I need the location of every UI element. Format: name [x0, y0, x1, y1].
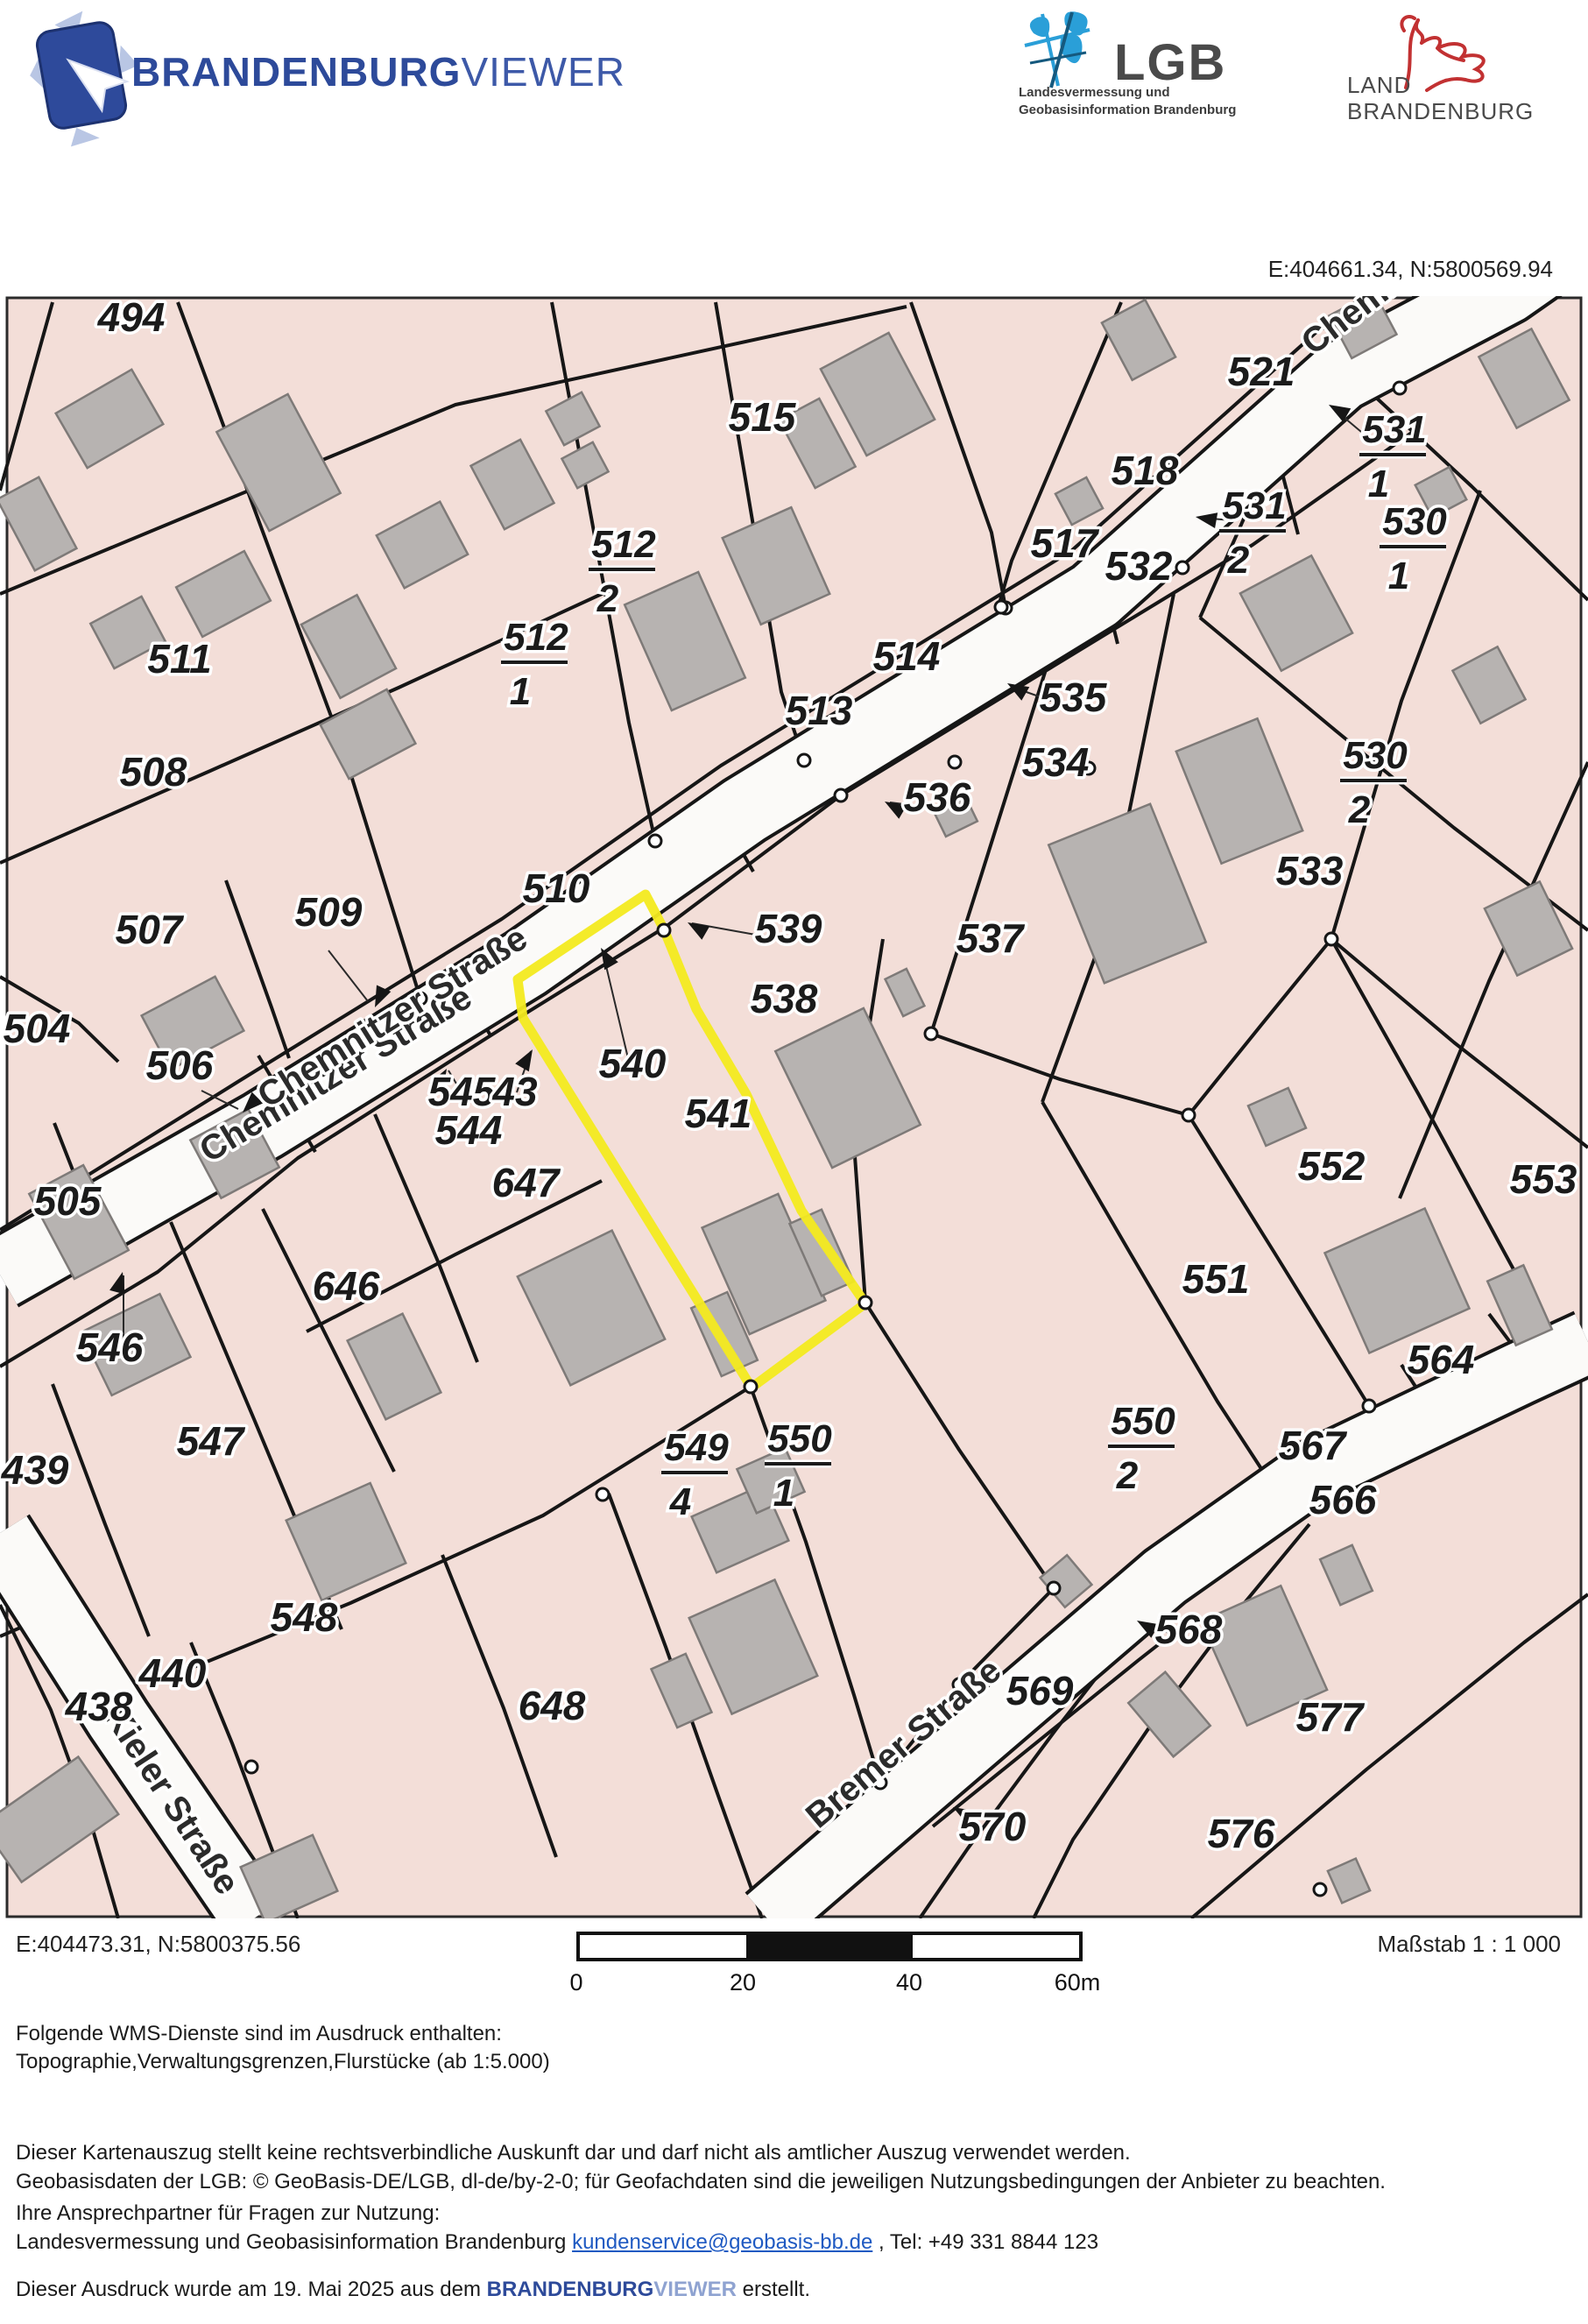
parcel-label-530-2-denominator: 2: [1348, 788, 1371, 831]
parcel-label-512-1-numerator: 512: [504, 616, 568, 659]
parcel-label-515: 515: [729, 394, 797, 440]
contact-email-link[interactable]: kundenservice@geobasis-bb.de: [572, 2230, 872, 2254]
parcel-label-512-2-numerator: 512: [591, 523, 656, 566]
parcel-label-544: 544: [435, 1107, 503, 1153]
map-view: Chemnitzer StraßeChemnitzer StraßeChemni…: [0, 296, 1588, 1918]
coordinate-readout-bottom: E:404473.31, N:5800375.56: [16, 1931, 300, 1958]
parcel-label-546: 546: [76, 1324, 144, 1370]
land-brandenburg-label: LAND BRANDENBURG: [1347, 72, 1534, 124]
print-brand-light: VIEWER: [653, 2278, 737, 2301]
boundary-point: [1314, 1883, 1326, 1896]
parcel-label-552: 552: [1298, 1143, 1366, 1189]
parcel-label-541: 541: [685, 1091, 752, 1136]
app-title-light: VIEWER: [461, 49, 625, 95]
parcel-label-551: 551: [1182, 1256, 1250, 1302]
boundary-point: [859, 1296, 872, 1309]
lgb-logo-subtitle: Landesvermessung und Geobasisinformation…: [1019, 84, 1236, 119]
parcel-label-568: 568: [1155, 1607, 1223, 1652]
parcel-label-538: 538: [751, 976, 818, 1021]
parcel-label-646: 646: [313, 1263, 380, 1309]
land-line2: BRANDENBURG: [1347, 98, 1534, 124]
wms-note-line2: Topographie,Verwaltungsgrenzen,Flurstück…: [16, 2050, 550, 2074]
scale-tick-label: 20: [730, 1969, 756, 1996]
boundary-point: [1182, 1109, 1195, 1121]
contact-post: , Tel: +49 331 8844 123: [872, 2230, 1098, 2254]
boundary-point: [1394, 382, 1406, 394]
parcel-label-438: 438: [65, 1684, 133, 1729]
parcel-label-647: 647: [492, 1160, 561, 1205]
scale-bar-ticks: 0204060m: [576, 1969, 1102, 1996]
parcel-label-535: 535: [1040, 675, 1108, 720]
parcel-label-548: 548: [271, 1594, 338, 1640]
parcel-label-550-1-numerator: 550: [767, 1417, 832, 1460]
parcel-label-510: 510: [523, 865, 590, 911]
boundary-point: [596, 1488, 609, 1501]
scale-bar-segment: [746, 1935, 913, 1958]
boundary-point: [949, 756, 961, 768]
lgb-logo-icon: [1016, 7, 1112, 90]
parcel-label-494: 494: [97, 296, 166, 340]
parcel-label-549-4-numerator: 549: [664, 1426, 729, 1469]
parcel-label-505: 505: [34, 1178, 102, 1224]
parcel-label-531-1-denominator: 1: [1368, 463, 1389, 505]
scale-tick-label: 60m: [1055, 1969, 1101, 1996]
parcel-label-570: 570: [959, 1804, 1027, 1849]
parcel-label-577: 577: [1296, 1694, 1366, 1740]
scale-bar: [576, 1932, 1083, 1961]
parcel-label-547: 547: [177, 1418, 246, 1464]
parcel-label-566: 566: [1309, 1477, 1377, 1522]
parcel-label-564: 564: [1408, 1337, 1475, 1382]
parcel-label-508: 508: [120, 749, 187, 795]
parcel-label-514: 514: [873, 633, 941, 679]
coordinate-readout-top: E:404661.34, N:5800569.94: [1268, 256, 1553, 283]
boundary-point: [1363, 1400, 1375, 1412]
boundary-point: [925, 1028, 937, 1040]
boundary-point: [798, 754, 810, 766]
parcel-label-533: 533: [1276, 848, 1344, 894]
land-line1: LAND: [1347, 72, 1534, 98]
wms-note-line1: Folgende WMS-Dienste sind im Ausdruck en…: [16, 2022, 502, 2046]
scale-text: Maßstab 1 : 1 000: [1377, 1931, 1561, 1958]
parcel-label-540: 540: [599, 1041, 667, 1086]
disclaimer-line1: Dieser Kartenauszug stellt keine rechtsv…: [16, 2141, 1131, 2165]
parcel-label-648: 648: [519, 1683, 586, 1728]
parcel-label-504: 504: [4, 1006, 71, 1051]
parcel-label-511: 511: [147, 636, 211, 682]
contact-heading: Ihre Ansprechpartner für Fragen zur Nutz…: [16, 2201, 440, 2226]
parcel-label-509: 509: [295, 889, 363, 935]
disclaimer-line2: Geobasisdaten der LGB: © GeoBasis-DE/LGB…: [16, 2170, 1386, 2194]
parcel-label-521: 521: [1228, 349, 1295, 394]
parcel-label-534: 534: [1022, 739, 1090, 785]
parcel-label-550-1-denominator: 1: [773, 1472, 794, 1515]
contact-pre: Landesvermessung und Geobasisinformation…: [16, 2230, 572, 2254]
boundary-point: [745, 1381, 757, 1393]
lgb-sub-line1: Landesvermessung und: [1019, 84, 1236, 102]
print-brand-bold: BRANDENBURG: [487, 2278, 654, 2301]
scale-tick-label: 40: [896, 1969, 922, 1996]
parcel-label-532: 532: [1105, 543, 1173, 589]
boundary-point: [835, 789, 847, 802]
parcel-label-507: 507: [116, 907, 185, 952]
parcel-label-537: 537: [956, 915, 1026, 961]
parcel-label-530-1-denominator: 1: [1388, 555, 1409, 597]
parcel-label-553: 553: [1510, 1156, 1577, 1202]
parcel-label-440: 440: [138, 1650, 207, 1696]
parcel-label-531-2-numerator: 531: [1222, 484, 1286, 527]
print-info-line: Dieser Ausdruck wurde am 19. Mai 2025 au…: [16, 2278, 810, 2302]
print-pre: Dieser Ausdruck wurde am 19. Mai 2025 au…: [16, 2278, 487, 2301]
parcel-label-550-2-denominator: 2: [1116, 1454, 1139, 1497]
parcel-label-567: 567: [1279, 1423, 1348, 1468]
boundary-point: [1176, 562, 1189, 574]
print-post: erstellt.: [737, 2278, 810, 2301]
boundary-point: [245, 1761, 258, 1773]
app-title: BRANDENBURGVIEWER: [131, 48, 625, 95]
parcel-label-530-1-numerator: 530: [1382, 500, 1447, 543]
contact-line: Landesvermessung und Geobasisinformation…: [16, 2230, 1098, 2255]
parcel-label-512-1-denominator: 1: [510, 670, 531, 713]
boundary-point: [658, 924, 670, 936]
scale-bar-segment: [580, 1935, 746, 1958]
boundary-point: [1048, 1582, 1060, 1594]
scale-bar-segment: [913, 1935, 1079, 1958]
app-title-bold: BRANDENBURG: [131, 49, 461, 95]
map-canvas: Chemnitzer StraßeChemnitzer StraßeChemni…: [0, 296, 1588, 1918]
header: BRANDENBURGVIEWER LGB Landesvermessung u…: [0, 0, 1588, 289]
parcel-label-506: 506: [146, 1042, 214, 1088]
boundary-point: [649, 835, 661, 847]
parcel-label-518: 518: [1112, 448, 1179, 493]
parcel-label-550-2-numerator: 550: [1111, 1400, 1175, 1443]
parcel-label-530-2-numerator: 530: [1343, 734, 1408, 777]
lgb-sub-line2: Geobasisinformation Brandenburg: [1019, 102, 1236, 119]
parcel-label-536: 536: [904, 774, 971, 820]
parcel-label-569: 569: [1006, 1668, 1074, 1713]
boundary-point: [1325, 933, 1337, 945]
parcel-label-439: 439: [1, 1447, 69, 1493]
parcel-label-531-2-denominator: 2: [1227, 539, 1250, 582]
parcel-label-549-4-denominator: 4: [669, 1480, 691, 1523]
parcel-label-513: 513: [786, 688, 853, 733]
brandenburgviewer-logo-icon: [25, 7, 138, 147]
parcel-label-517: 517: [1031, 520, 1100, 566]
parcel-label-539: 539: [755, 906, 822, 951]
boundary-point: [995, 601, 1007, 613]
lgb-logo-word: LGB: [1114, 33, 1226, 92]
scale-tick-label: 0: [569, 1969, 582, 1996]
parcel-label-576: 576: [1208, 1811, 1275, 1856]
parcel-label-512-2-denominator: 2: [596, 577, 619, 620]
parcel-label-531-1-numerator: 531: [1362, 408, 1426, 451]
